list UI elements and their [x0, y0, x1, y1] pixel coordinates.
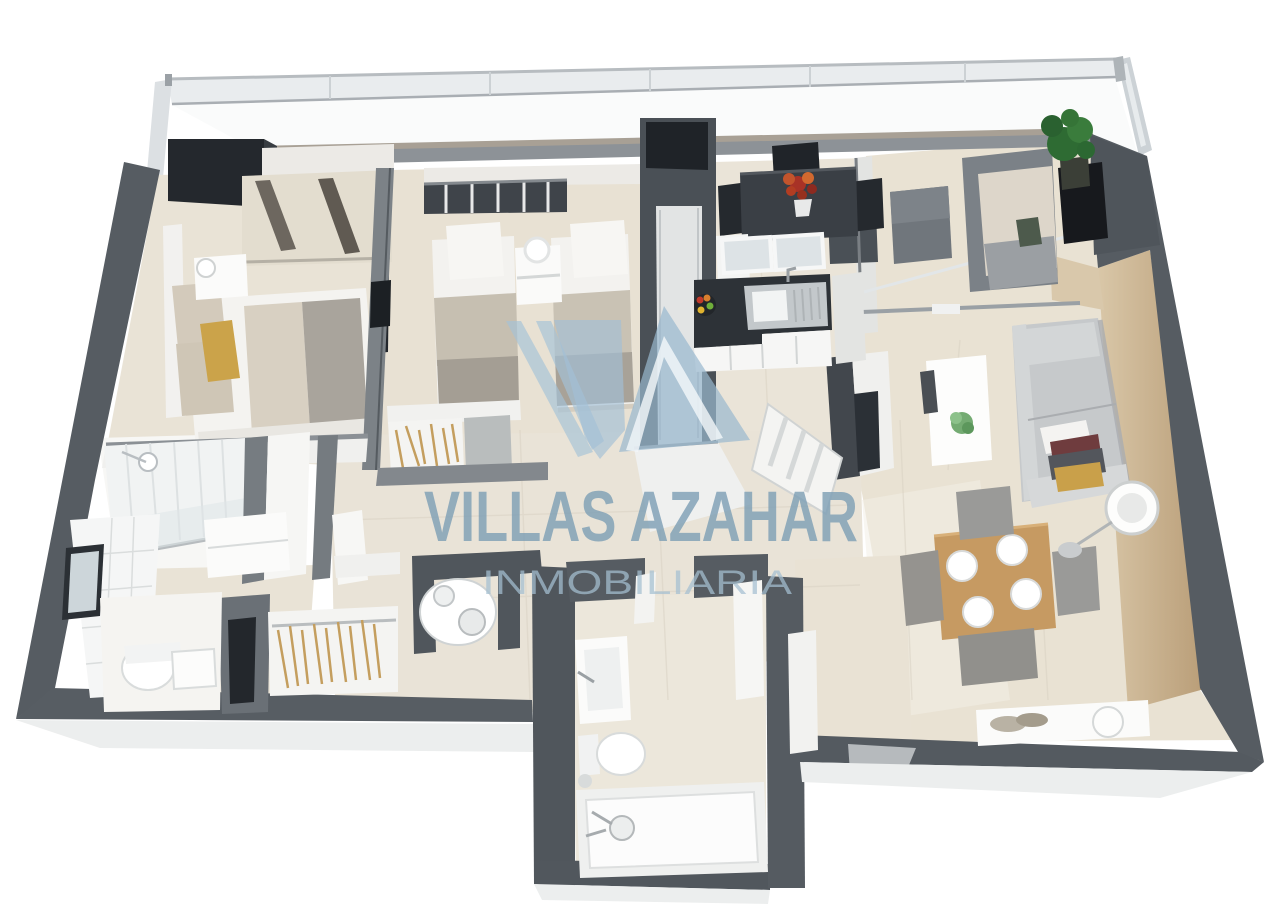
svg-text:VILLAS AZAHAR: VILLAS AZAHAR [424, 478, 858, 557]
svg-text:INMOBILIARIA: INMOBILIARIA [482, 564, 792, 602]
